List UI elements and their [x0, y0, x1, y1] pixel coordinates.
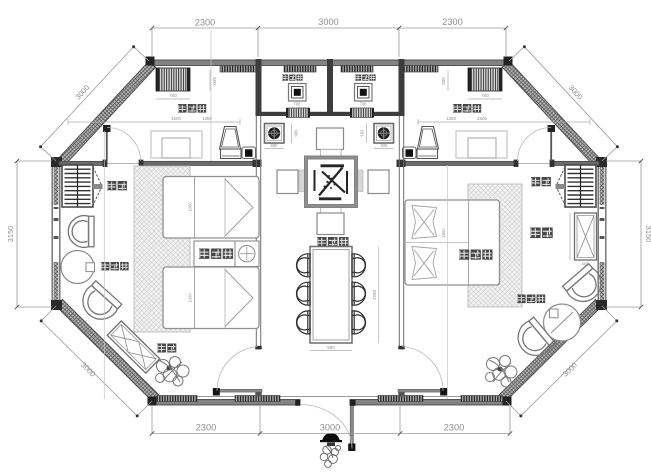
svg-text:500: 500: [212, 77, 217, 85]
svg-text:1000: 1000: [188, 202, 193, 212]
svg-text:1000: 1000: [188, 293, 193, 303]
svg-text:2300: 2300: [442, 17, 462, 27]
svg-text:600: 600: [360, 129, 365, 137]
svg-text:600: 600: [294, 130, 299, 138]
svg-text:1800: 1800: [441, 228, 446, 238]
svg-text:1350: 1350: [446, 116, 457, 121]
svg-text:2300: 2300: [196, 423, 216, 433]
svg-text:700: 700: [294, 102, 302, 107]
svg-text:600: 600: [381, 143, 389, 148]
svg-text:1500: 1500: [477, 116, 488, 121]
svg-text:700: 700: [481, 93, 489, 98]
svg-text:500: 500: [441, 77, 446, 85]
svg-text:700: 700: [360, 102, 368, 107]
svg-text:900: 900: [327, 345, 335, 350]
svg-text:3150: 3150: [6, 226, 15, 243]
svg-text:2260: 2260: [372, 289, 377, 300]
svg-text:700: 700: [169, 93, 177, 98]
svg-text:1500: 1500: [171, 116, 182, 121]
svg-text:2300: 2300: [195, 18, 215, 28]
svg-text:600: 600: [271, 143, 279, 148]
svg-text:3000: 3000: [320, 423, 340, 433]
svg-text:3150: 3150: [644, 226, 651, 243]
svg-text:3000: 3000: [318, 17, 338, 27]
svg-text:2300: 2300: [444, 423, 464, 433]
